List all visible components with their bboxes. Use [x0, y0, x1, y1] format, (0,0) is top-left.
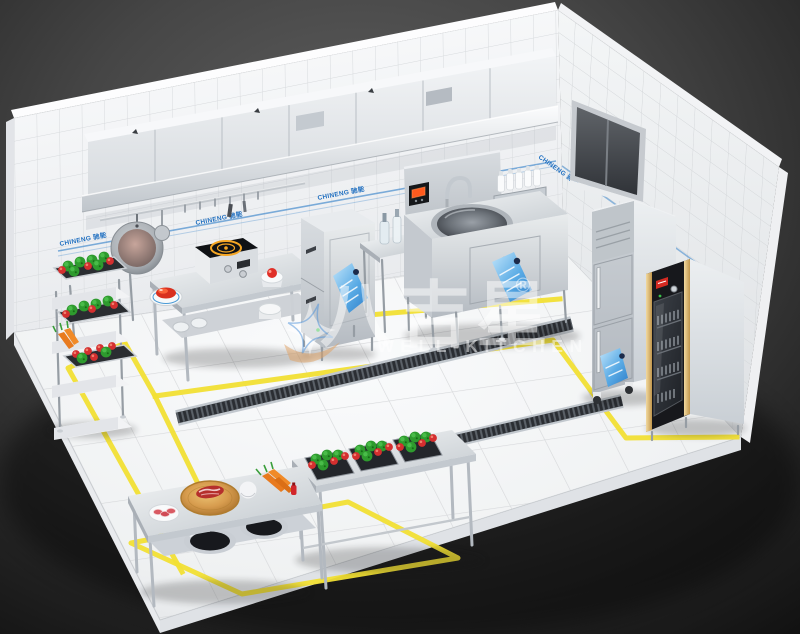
cutting-board — [181, 481, 239, 515]
fridge-handle-1 — [597, 267, 600, 309]
sanitizer-cabinet — [646, 259, 744, 440]
watermark-subtitle: WELL-KITCHEN — [377, 336, 588, 356]
watermark-registered: ® — [516, 275, 531, 297]
wok-control-panel — [409, 182, 429, 206]
kitchen-scene: CHINENG 驰能 CHINENG 驰能 CHINENG 驰能 CHINENG… — [0, 0, 800, 634]
sanitizer-door — [654, 292, 682, 416]
dough-ball — [240, 482, 257, 499]
kitchen-render: CHINENG 驰能 CHINENG 驰能 CHINENG 驰能 CHINENG… — [0, 0, 800, 634]
meat-slice-plate — [149, 505, 179, 522]
fridge-handle-2 — [597, 331, 600, 373]
watermark: 八吉星 ® WELL-KITCHEN — [280, 275, 588, 363]
wall-left-side-edge — [6, 118, 14, 340]
